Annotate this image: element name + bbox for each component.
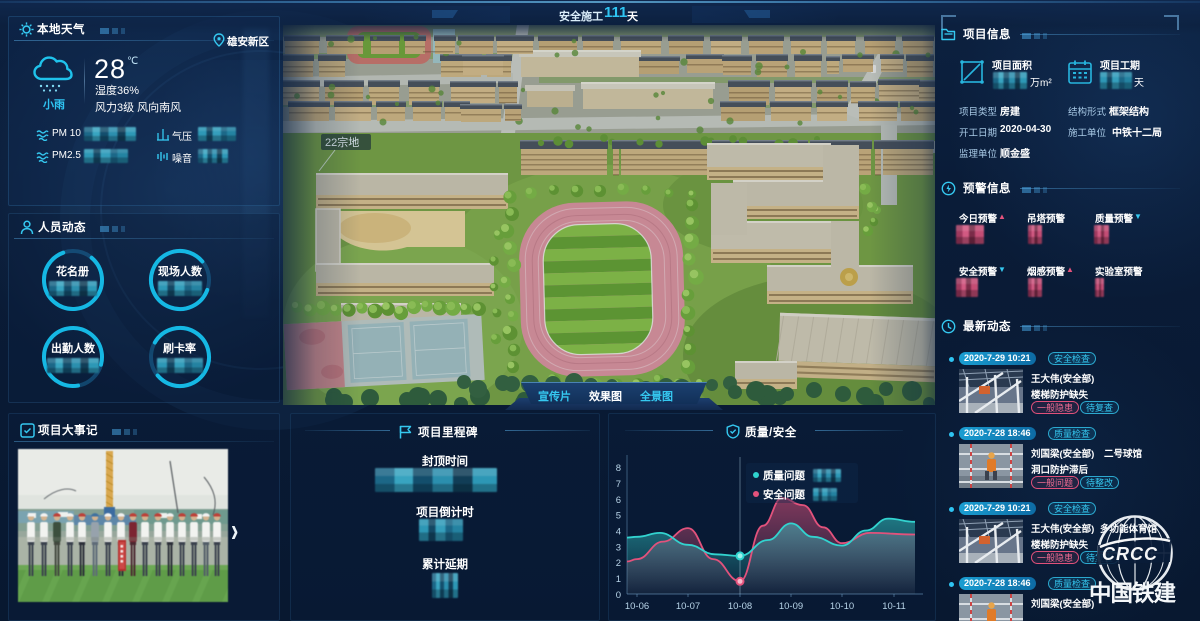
svg-text:质量问题: 质量问题 (763, 469, 805, 482)
svg-text:CRCC: CRCC (1102, 544, 1158, 564)
svg-text:10-07: 10-07 (676, 601, 700, 612)
svg-text:10-11: 10-11 (882, 601, 906, 612)
svg-text:8: 8 (616, 463, 621, 474)
svg-text:3: 3 (616, 542, 621, 553)
svg-text:2: 2 (616, 558, 621, 569)
svg-text:1: 1 (616, 574, 621, 585)
svg-text:10-06: 10-06 (625, 601, 649, 612)
svg-text:10-08: 10-08 (728, 601, 752, 612)
svg-text:5: 5 (616, 511, 621, 522)
svg-text:安全问题: 安全问题 (763, 488, 805, 501)
svg-text:7: 7 (616, 479, 621, 490)
svg-text:10-09: 10-09 (779, 601, 803, 612)
svg-text:10-10: 10-10 (830, 601, 854, 612)
svg-text:中国铁建: 中国铁建 (1089, 581, 1177, 606)
svg-text:0: 0 (616, 590, 621, 601)
svg-text:6: 6 (616, 495, 621, 506)
svg-text:4: 4 (616, 527, 621, 538)
